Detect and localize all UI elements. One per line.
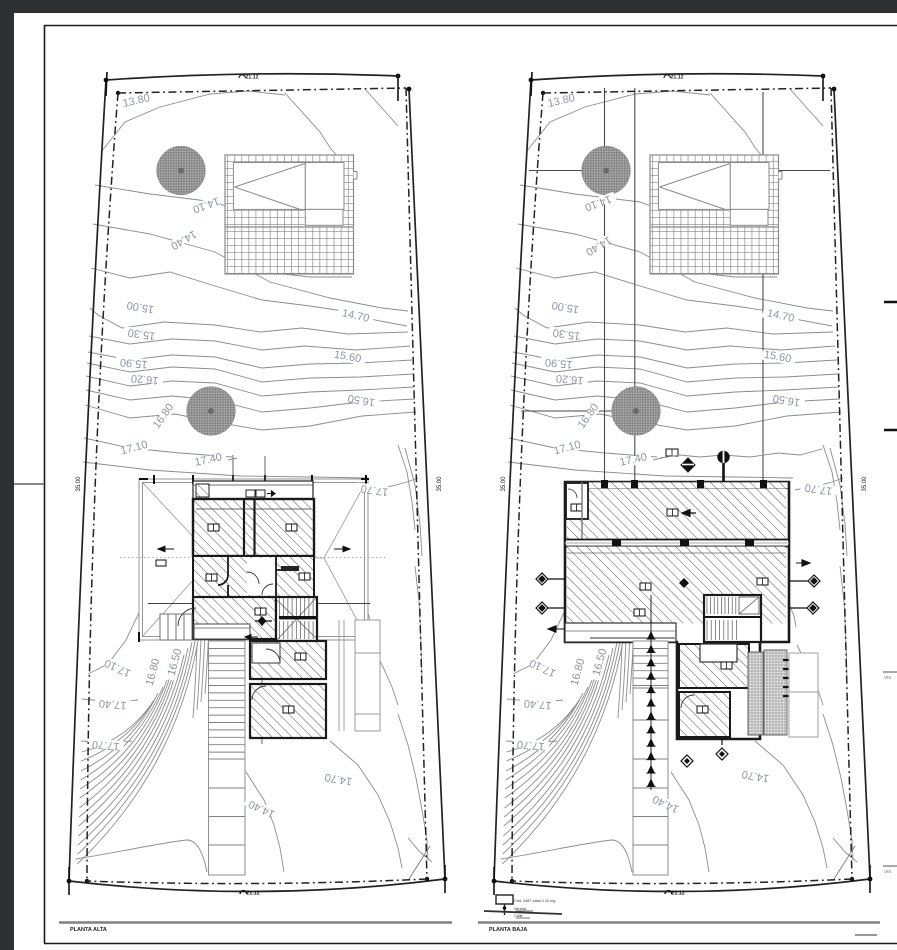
svg-text:Cmt. 2487 casa 0.10 mg: Cmt. 2487 casa 0.10 mg: [514, 899, 555, 903]
svg-text:21.12: 21.12: [246, 891, 260, 897]
svg-text:35.00: 35.00: [437, 476, 443, 492]
svg-text:35.00: 35.00: [862, 476, 868, 492]
svg-text:15.90: 15.90: [545, 356, 573, 370]
svg-text:Vereda: Vereda: [514, 907, 527, 911]
svg-text:17.70: 17.70: [92, 738, 120, 752]
svg-text:16.20: 16.20: [556, 372, 584, 386]
svg-text:35.00: 35.00: [501, 476, 507, 492]
svg-text:17.40: 17.40: [99, 697, 127, 711]
svg-text:21.12: 21.12: [671, 75, 684, 81]
svg-text:VIS: VIS: [884, 869, 891, 874]
svg-text:35.00: 35.00: [76, 476, 82, 492]
svg-text:PLANTA BAJA: PLANTA BAJA: [489, 927, 527, 933]
svg-text:PLANTA ALTA: PLANTA ALTA: [70, 927, 107, 933]
svg-text:21.12: 21.12: [671, 891, 685, 897]
svg-text:Calle: Calle: [514, 914, 523, 918]
svg-text:VIS: VIS: [884, 675, 891, 680]
svg-text:15.90: 15.90: [120, 356, 148, 370]
svg-text:21.12: 21.12: [246, 75, 259, 81]
svg-text:17.40: 17.40: [524, 697, 552, 711]
svg-text:16.20: 16.20: [131, 372, 159, 386]
svg-text:17.70: 17.70: [517, 738, 545, 752]
